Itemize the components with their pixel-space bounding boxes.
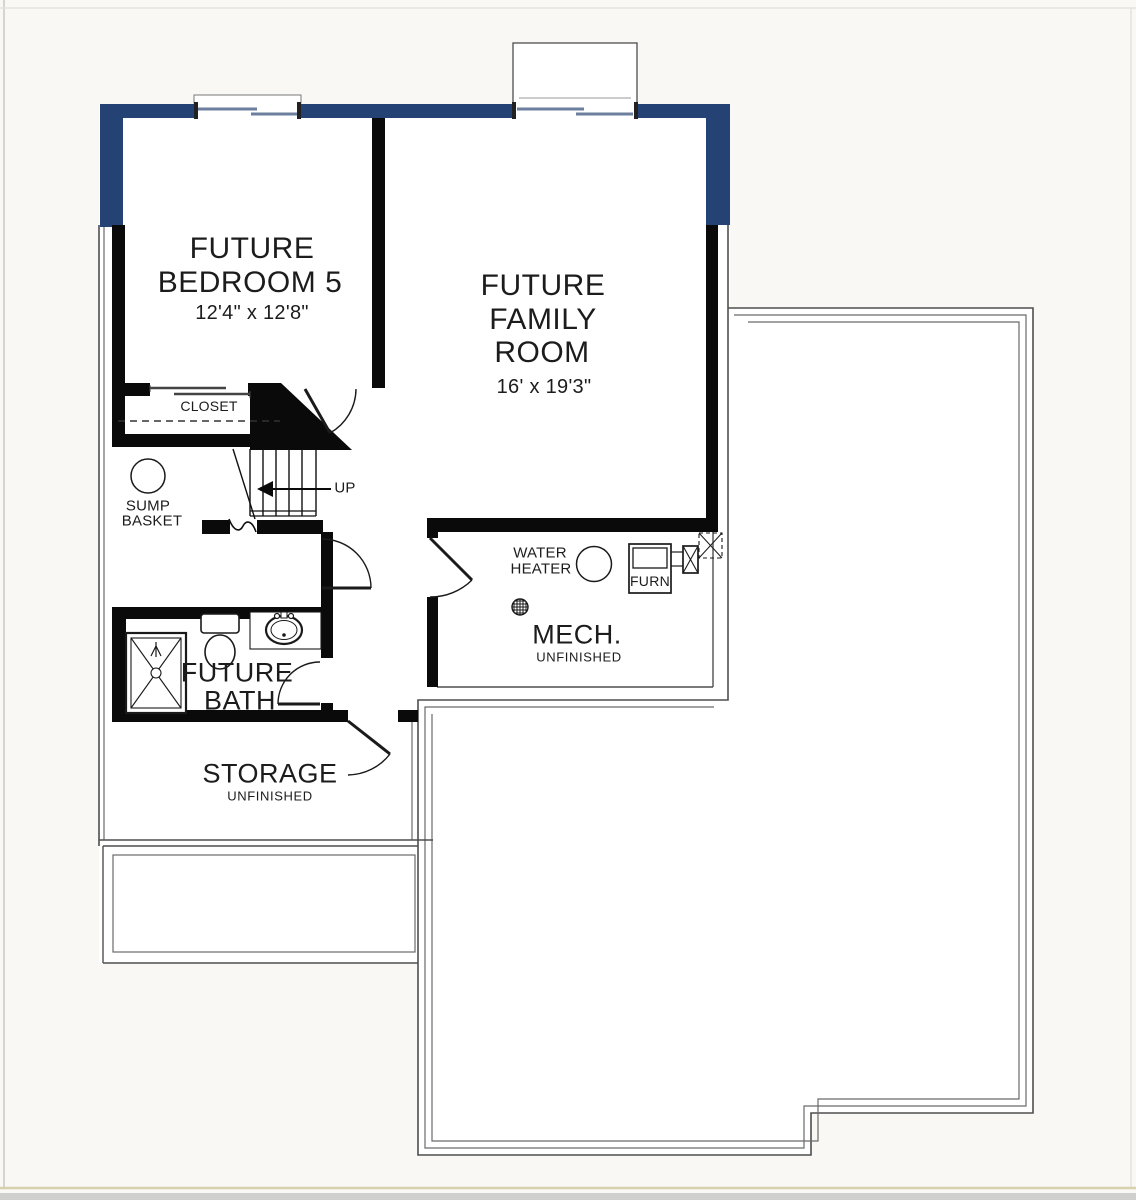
bedroom-label-line1: FUTURE: [190, 234, 315, 264]
floor-plan: FUTURE BEDROOM 5 12'4" x 12'8" FUTURE FA…: [0, 0, 1136, 1200]
bedroom-label-line2: BEDROOM 5: [158, 268, 343, 298]
sump-basket-icon: [131, 459, 165, 493]
window-well: [513, 43, 637, 104]
bath-label-line1: FUTURE: [181, 660, 294, 687]
bedroom-window-icon: [194, 95, 301, 119]
family-room-label-line3: ROOM: [494, 338, 589, 368]
bath-label-line2: BATH: [204, 688, 276, 715]
family-room-label-line1: FUTURE: [481, 271, 606, 301]
water-heater-icon: [577, 547, 612, 582]
stairs-up-label: UP: [334, 481, 355, 496]
bedroom-dimensions: 12'4" x 12'8": [195, 303, 309, 323]
water-heater-label-line2: HEATER: [511, 562, 572, 577]
floor-drain-icon: [512, 599, 528, 615]
shower-icon: [126, 633, 186, 713]
family-room-label-line2: FAMILY: [489, 305, 596, 335]
sink-icon: [250, 612, 321, 649]
floorplan-drawing: [0, 0, 1136, 1200]
sump-basket-label-line2: BASKET: [122, 514, 182, 529]
family-room-window-icon: [512, 102, 638, 119]
water-heater-label-line1: WATER: [513, 546, 567, 561]
storage-label: STORAGE: [202, 761, 337, 788]
family-room-dimensions: 16' x 19'3": [497, 377, 592, 397]
sump-basket-label-line1: SUMP: [126, 499, 170, 514]
storage-status: UNFINISHED: [227, 790, 312, 803]
furnace-label: FURN: [630, 574, 670, 588]
mech-room-label: MECH.: [532, 622, 622, 649]
closet-label: CLOSET: [180, 399, 237, 413]
mech-room-status: UNFINISHED: [536, 651, 621, 664]
